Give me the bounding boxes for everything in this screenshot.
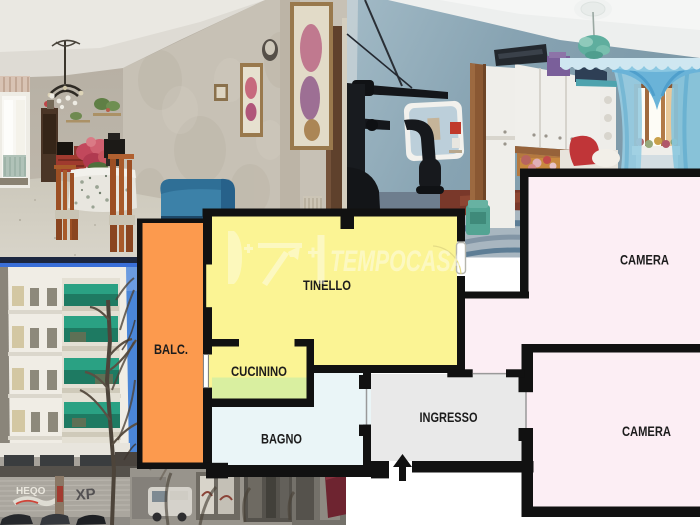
svg-text:CAMERA: CAMERA (620, 252, 669, 268)
svg-text:CAMERA: CAMERA (622, 423, 671, 439)
svg-text:BAGNO: BAGNO (261, 431, 302, 447)
svg-text:CUCININO: CUCININO (231, 363, 287, 379)
svg-text:BALC.: BALC. (154, 341, 188, 357)
svg-text:XP: XP (75, 486, 96, 504)
svg-text:HEQO: HEQO (16, 486, 46, 497)
svg-text:TEMPOCASA: TEMPOCASA (330, 245, 466, 278)
svg-text:TINELLO: TINELLO (303, 277, 351, 293)
svg-text:INGRESSO: INGRESSO (420, 409, 478, 425)
